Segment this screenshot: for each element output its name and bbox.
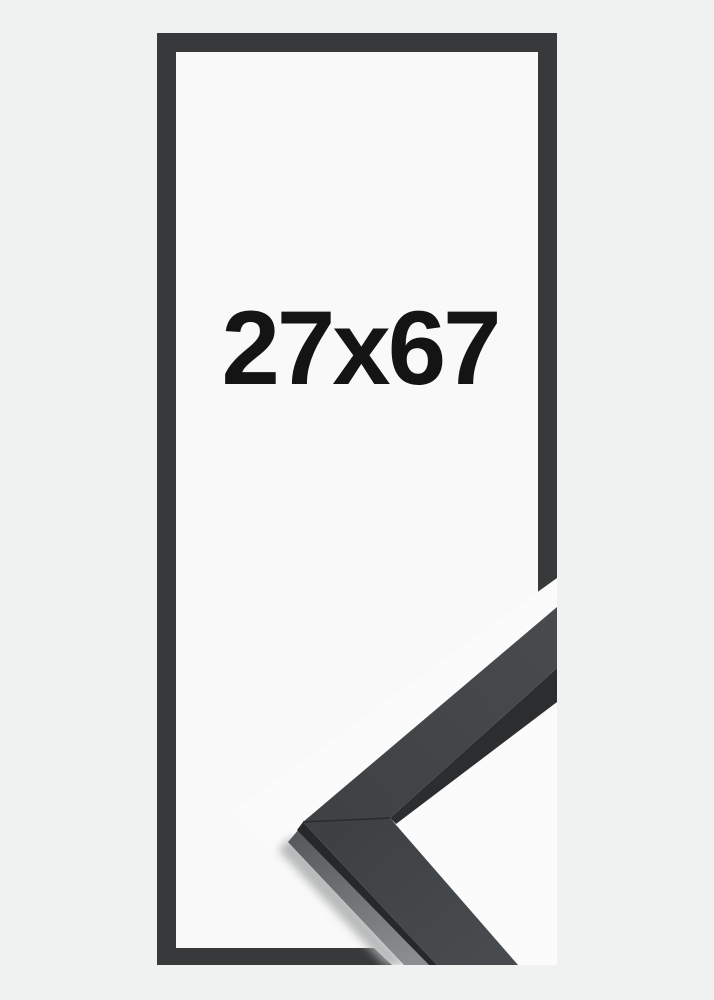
- frame-product-canvas: 27x67: [0, 0, 714, 1000]
- frame-product-image: 27x67: [0, 0, 714, 1000]
- size-label: 27x67: [222, 290, 499, 407]
